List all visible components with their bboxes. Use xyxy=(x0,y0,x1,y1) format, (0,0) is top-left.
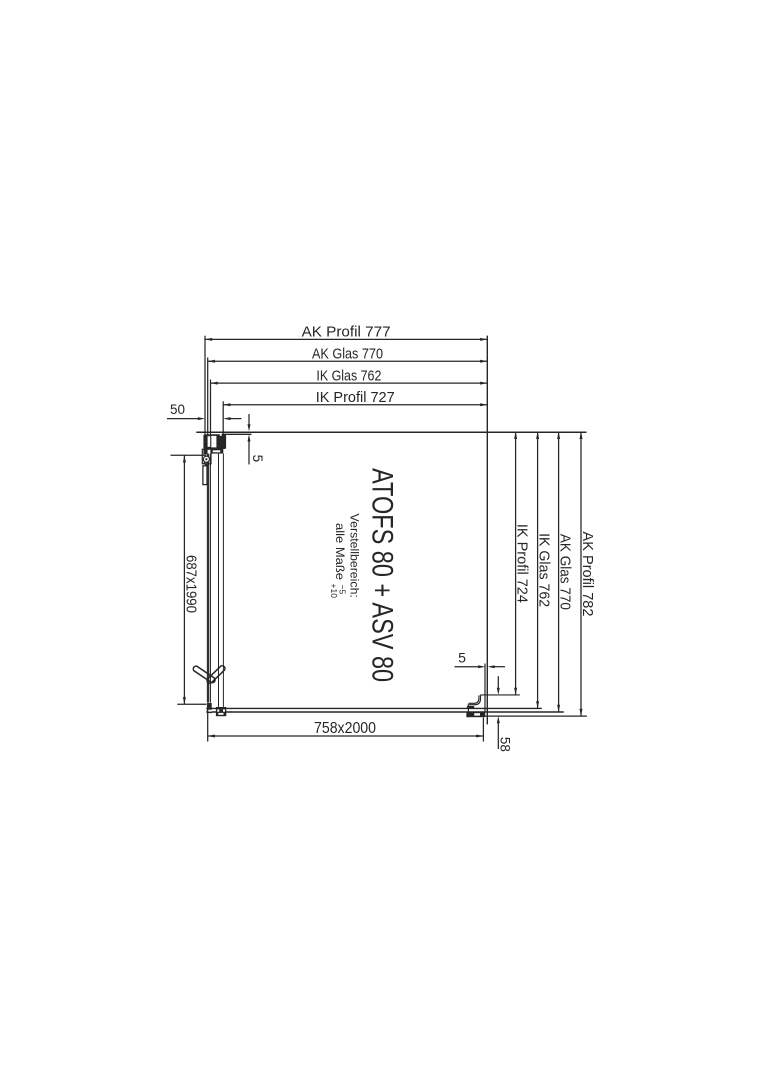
svg-text:758x2000: 758x2000 xyxy=(314,720,376,737)
svg-text:IK Profil 727: IK Profil 727 xyxy=(316,389,395,406)
svg-text:5: 5 xyxy=(250,455,265,463)
svg-text:AK Profil 777: AK Profil 777 xyxy=(302,324,391,341)
svg-text:IK Glas 762: IK Glas 762 xyxy=(316,367,381,384)
svg-text:687x1990: 687x1990 xyxy=(182,555,199,613)
svg-text:58: 58 xyxy=(497,737,513,752)
svg-text:AK Glas 770: AK Glas 770 xyxy=(312,346,383,363)
svg-text:ATOFS 80 + ASV 80: ATOFS 80 + ASV 80 xyxy=(366,468,399,682)
svg-text:5: 5 xyxy=(458,649,466,665)
svg-text:IK Glas 762: IK Glas 762 xyxy=(536,533,553,607)
svg-text:Verstellbereich:: Verstellbereich: xyxy=(348,514,362,598)
svg-text:50: 50 xyxy=(170,402,185,417)
svg-text:AK Glas 770: AK Glas 770 xyxy=(557,534,574,610)
svg-text:alle Maße: alle Maße xyxy=(333,523,347,580)
svg-text:+10: +10 xyxy=(329,584,339,599)
svg-text:IK Profil 724: IK Profil 724 xyxy=(514,524,531,603)
svg-text:AK Profil 782: AK Profil 782 xyxy=(579,532,596,617)
